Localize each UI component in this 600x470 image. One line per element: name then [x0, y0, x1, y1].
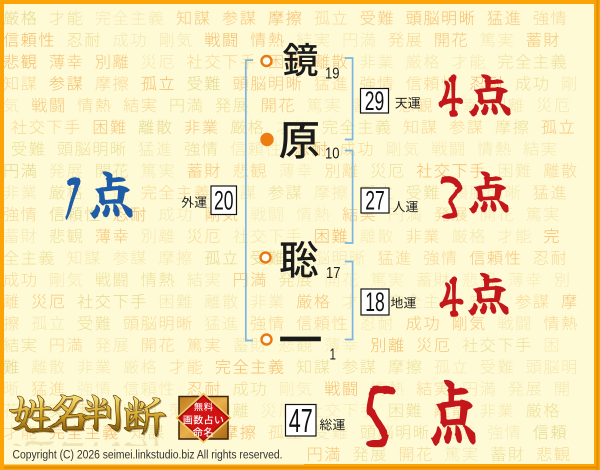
svg-text:19: 19: [325, 65, 340, 82]
svg-text:18: 18: [365, 287, 385, 317]
svg-text:47: 47: [289, 402, 313, 439]
svg-text:Copyright (C) 2026 seimei.link: Copyright (C) 2026 seimei.linkstudio.biz…: [13, 448, 283, 462]
svg-text:17: 17: [326, 265, 341, 282]
svg-text:1: 1: [330, 346, 337, 363]
svg-text:27: 27: [365, 186, 385, 216]
svg-text:10: 10: [325, 146, 340, 163]
svg-text:29: 29: [365, 86, 385, 116]
svg-text:20: 20: [214, 185, 234, 215]
